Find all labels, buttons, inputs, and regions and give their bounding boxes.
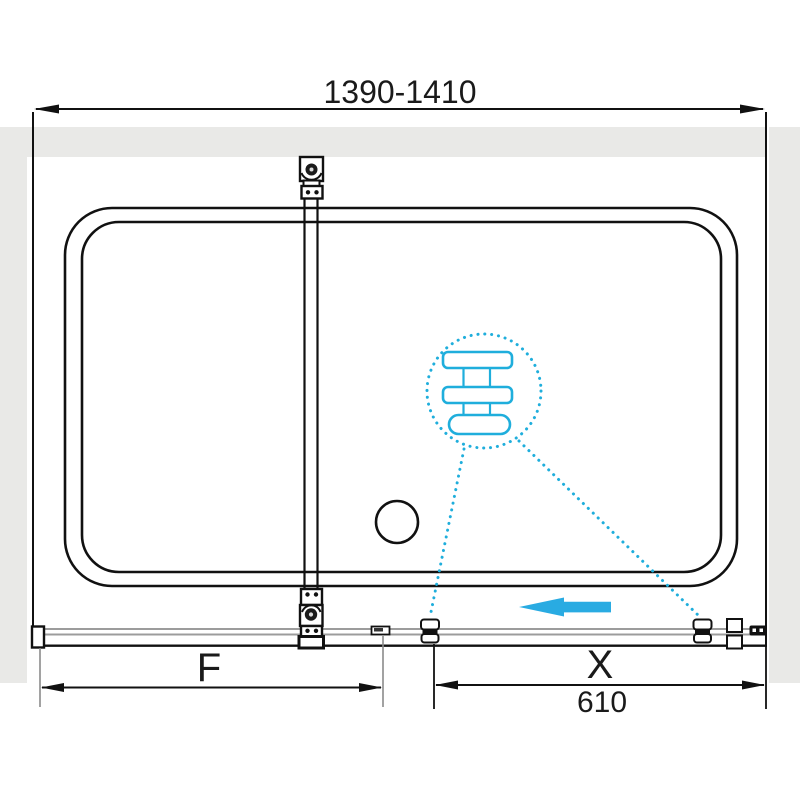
diagram-canvas: 1390-1410 (0, 0, 800, 800)
arrow-right-icon (359, 683, 382, 692)
arrow-left-icon (41, 683, 64, 692)
arrow-right-icon (742, 681, 765, 690)
bottom-roller-bracket (299, 589, 324, 648)
wall-top (0, 127, 765, 157)
shower-enclosure-diagram: 1390-1410 (0, 0, 800, 800)
overall-width-dimension: 1390-1410 (34, 74, 765, 114)
sliding-panel-value: 610 (577, 686, 627, 719)
fixed-panel-dimension: F (41, 646, 382, 692)
slide-direction-arrow-icon (519, 598, 611, 617)
wall-left (0, 127, 27, 683)
arrow-left-icon (435, 681, 458, 690)
track-stopper (372, 627, 390, 635)
overall-width-label: 1390-1410 (323, 74, 476, 110)
bottom-track (44, 629, 756, 635)
arrow-left-icon (34, 105, 59, 114)
fixed-panel-label: F (197, 646, 221, 690)
right-wall-bracket (750, 626, 768, 636)
shower-tray (65, 208, 737, 586)
sliding-panel-dimension: X 610 (435, 643, 765, 719)
glass-clamp-right (694, 620, 712, 643)
towel-bar-icon (443, 352, 512, 434)
top-roller-bracket (300, 157, 323, 199)
left-wall-profile (32, 627, 44, 648)
wall-right (769, 127, 800, 683)
drain-icon (376, 501, 418, 543)
extension-lines (40, 636, 766, 709)
arrow-right-icon (740, 105, 765, 114)
glass-clamp-left (421, 620, 439, 643)
sliding-panel-label: X (587, 643, 614, 687)
